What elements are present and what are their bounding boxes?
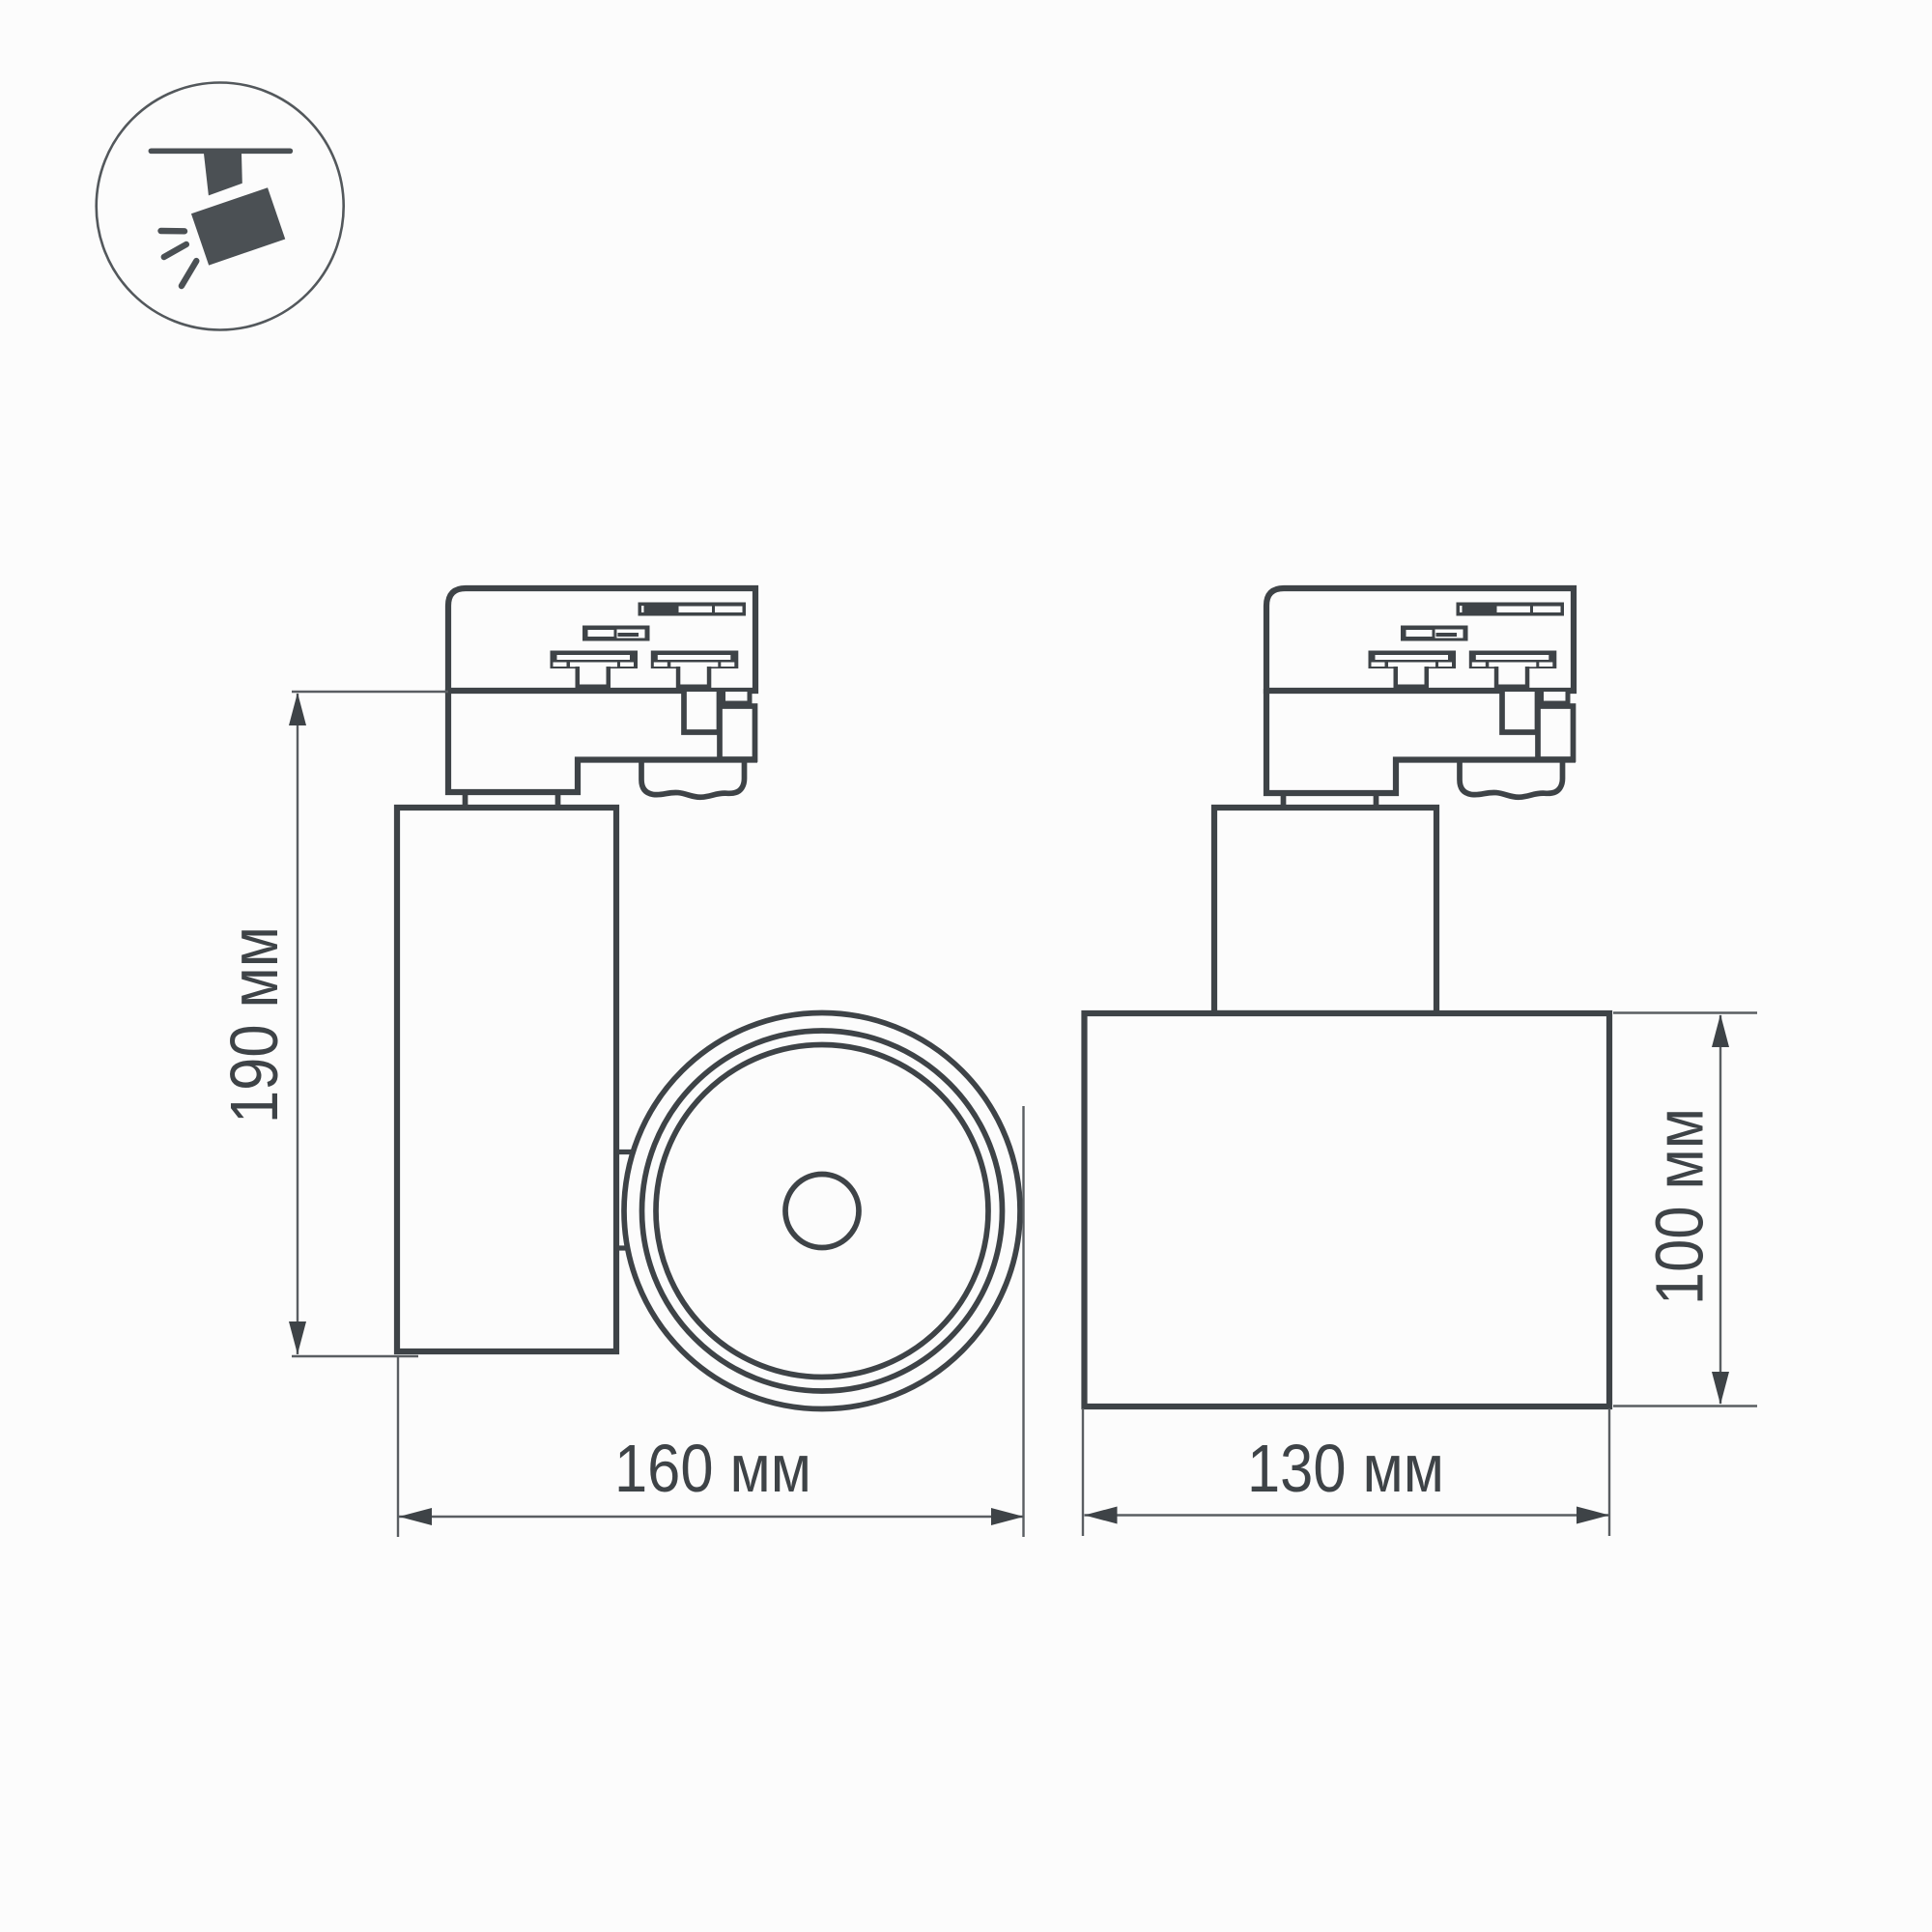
svg-text:130 мм: 130 мм: [1247, 1431, 1444, 1506]
svg-text:160 мм: 160 мм: [614, 1431, 811, 1506]
svg-text:100 мм: 100 мм: [1642, 1108, 1718, 1305]
svg-text:190 мм: 190 мм: [216, 926, 292, 1123]
